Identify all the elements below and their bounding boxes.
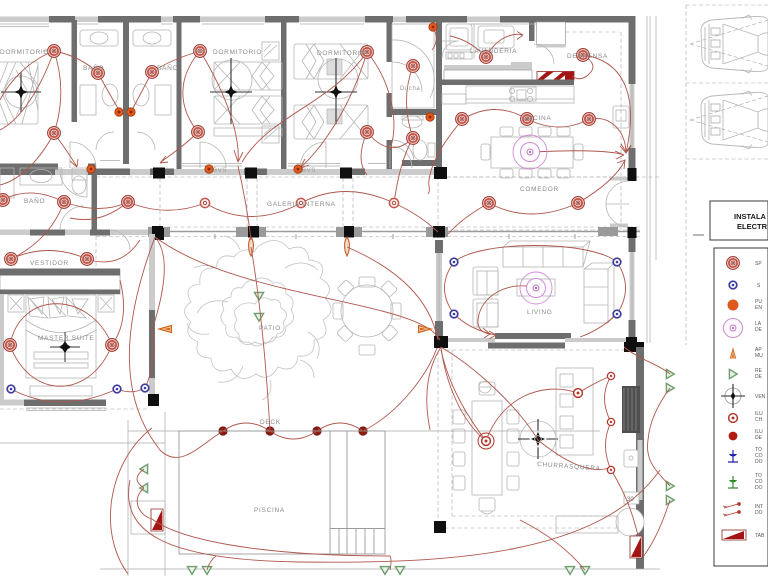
svg-text:DORMITORIO: DORMITORIO: [0, 49, 49, 56]
svg-text:COCINA: COCINA: [522, 115, 551, 122]
svg-text:Ducha: Ducha: [400, 86, 420, 92]
svg-text:DE: DE: [755, 435, 763, 441]
svg-text:DE: DE: [755, 327, 763, 333]
svg-text:DORMITORIO: DORMITORIO: [213, 49, 262, 56]
svg-text:BVS: BVS: [302, 168, 316, 174]
svg-text:PISCINA: PISCINA: [254, 507, 285, 514]
svg-text:VESTIDOR: VESTIDOR: [30, 260, 69, 267]
svg-text:BAÑO: BAÑO: [24, 196, 45, 205]
svg-text:BVS: BVS: [213, 168, 227, 174]
svg-text:MU: MU: [755, 353, 763, 359]
svg-text:VEN: VEN: [755, 394, 766, 400]
svg-text:DESPENSA: DESPENSA: [567, 53, 608, 60]
svg-text:INSTALA: INSTALA: [734, 212, 767, 221]
svg-text:SP: SP: [755, 261, 762, 267]
svg-text:BAÑO: BAÑO: [157, 63, 178, 72]
svg-text:DO: DO: [755, 485, 763, 491]
svg-text:COMEDOR: COMEDOR: [520, 186, 559, 193]
svg-text:BAÑO: BAÑO: [83, 63, 104, 72]
svg-text:MASTER SUITE: MASTER SUITE: [38, 335, 94, 342]
svg-text:TAB: TAB: [755, 533, 765, 539]
svg-text:LAVANDERIA: LAVANDERIA: [470, 48, 517, 55]
svg-text:LIVING: LIVING: [527, 309, 553, 316]
svg-text:DO: DO: [755, 510, 763, 516]
svg-text:PATIO: PATIO: [259, 325, 281, 332]
svg-text:DO: DO: [755, 459, 763, 465]
svg-text:DORMITORIO: DORMITORIO: [317, 50, 366, 57]
svg-text:CH: CH: [755, 417, 763, 423]
svg-text:DECK: DECK: [260, 419, 281, 426]
svg-text:DE: DE: [755, 374, 763, 380]
svg-text:EN: EN: [755, 305, 762, 311]
svg-text:ELECTR: ELECTR: [737, 222, 768, 231]
svg-text:GALERIA INTERNA: GALERIA INTERNA: [267, 201, 336, 208]
